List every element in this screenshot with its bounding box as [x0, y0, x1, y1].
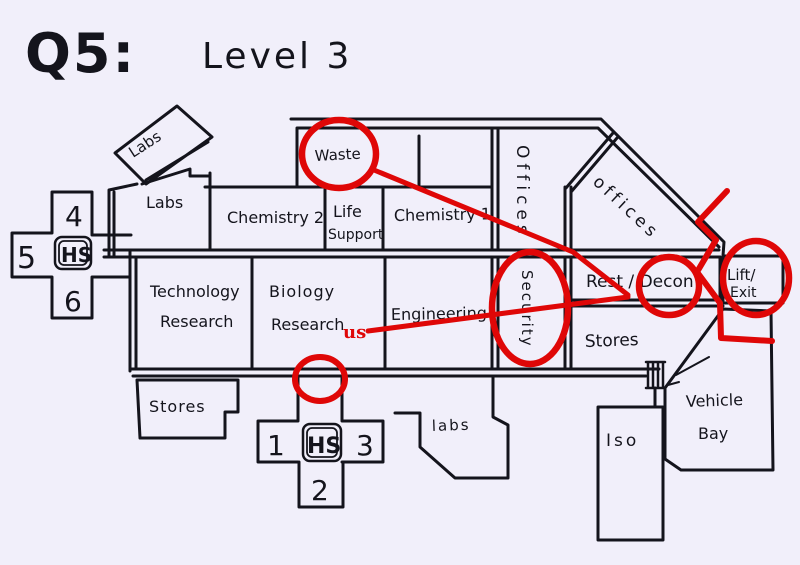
room-label-vehicle-bay-1: Vehicle [685, 390, 743, 411]
airlock-bottom-number-1: 1 [267, 429, 285, 462]
airlock-bottom-number-2: 2 [311, 474, 329, 507]
room-label-biology-research-2: Research [271, 315, 344, 334]
room-label-technology-research-2: Research [160, 312, 233, 331]
hand-drawn-level-map: Q5: Level 3 Labs Labs Chemistry 2 Life S… [0, 0, 800, 565]
question-title: Q5: [25, 22, 136, 85]
airlock-left-number-6: 6 [64, 285, 82, 318]
room-label-stores-south: Stores [149, 397, 206, 416]
room-label-waste: Waste [314, 145, 361, 165]
room-label-offices-corridor: Offices [512, 145, 532, 239]
airlock-left-hs-label: HS [61, 243, 92, 267]
airlock-bottom-hs-label: HS [307, 434, 341, 459]
room-label-technology-research-1: Technology [149, 282, 240, 301]
airlock-bottom-number-3: 3 [356, 429, 374, 462]
room-label-vehicle-bay-2: Bay [698, 424, 728, 443]
us-position-marker: us [343, 322, 366, 343]
level-title: Level 3 [202, 36, 352, 77]
room-label-labs-west: Labs [146, 193, 183, 212]
room-label-life-support-1: Life [333, 202, 362, 221]
room-label-biology-research-1: Biology [269, 282, 335, 301]
red-text-group: us [343, 322, 366, 343]
airlock-left-number-5: 5 [17, 241, 36, 276]
room-label-lift-exit-2: Exit [730, 285, 757, 301]
room-label-stores-east: Stores [584, 330, 639, 352]
room-label-life-support-2: Support [328, 227, 384, 243]
room-label-labs-south: labs [432, 416, 471, 435]
room-label-lift-exit-1: Lift/ [727, 266, 756, 284]
room-label-chemistry-2: Chemistry 2 [227, 208, 324, 227]
airlock-left-number-4: 4 [65, 200, 83, 233]
room-label-iso: Iso [606, 431, 639, 451]
facility-map-svg: Q5: Level 3 Labs Labs Chemistry 2 Life S… [0, 0, 800, 565]
